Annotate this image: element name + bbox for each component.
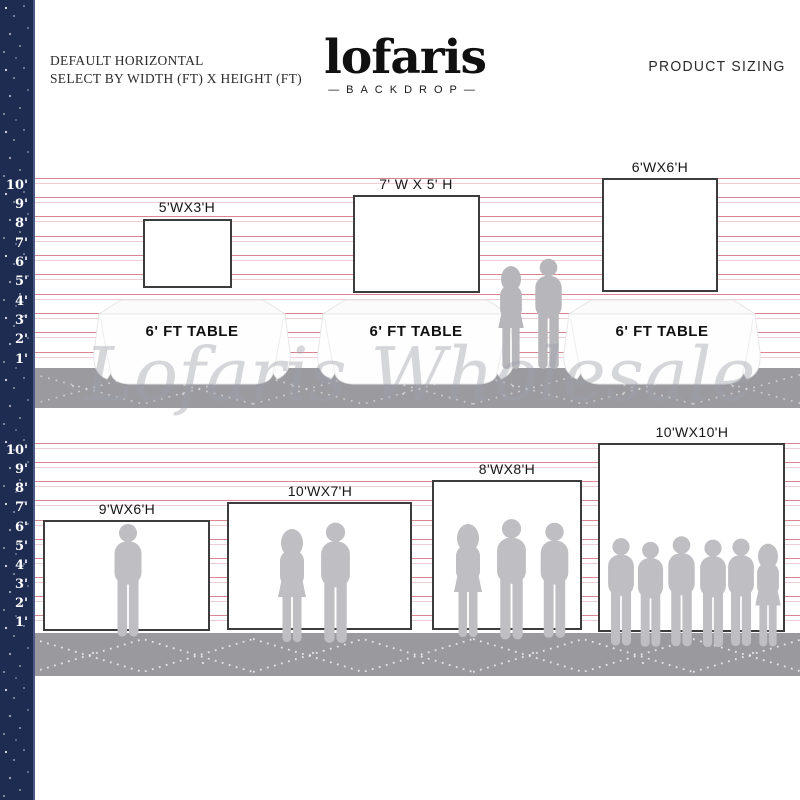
- reference-couple-silhouette: [491, 257, 573, 371]
- backdrop-size-label: 8'WX8'H: [447, 461, 567, 477]
- tablecloth-graphic: [311, 297, 521, 387]
- man-silhouette: [535, 259, 561, 369]
- woman-silhouette: [755, 544, 780, 647]
- scale-people-2: [270, 520, 366, 646]
- man-silhouette: [638, 542, 663, 647]
- scale-people-1: [104, 522, 152, 639]
- backdrop-size-label: 6'WX6'H: [600, 159, 720, 175]
- man-silhouette: [497, 519, 526, 639]
- woman-silhouette: [498, 266, 523, 369]
- product-sizing-poster: DEFAULT HORIZONTAL SELECT BY WIDTH (FT) …: [0, 0, 800, 800]
- foot-line: [33, 294, 800, 295]
- ruler-strip: [0, 0, 35, 800]
- backdrop-size-label: 10'WX7'H: [255, 483, 385, 499]
- ruler-strip-dots-pattern: [0, 0, 33, 800]
- backdrop-6x6: [602, 178, 718, 292]
- scale-people-3: [446, 513, 576, 646]
- table-2: 6' FT TABLE: [311, 297, 521, 387]
- man-silhouette: [541, 523, 569, 638]
- foot-lines-layer: [0, 0, 800, 800]
- backdrop-size-label: 9'WX6'H: [67, 501, 187, 517]
- backdrop-size-label: 7' W X 5' H: [346, 176, 486, 192]
- backdrop-size-label: 5'WX3'H: [127, 199, 247, 215]
- backdrop-size-label: 10'WX10'H: [627, 424, 757, 440]
- man-silhouette: [700, 540, 726, 647]
- man-silhouette: [115, 524, 142, 637]
- woman-silhouette: [454, 524, 482, 637]
- tablecloth-graphic: [557, 297, 767, 387]
- table-label: 6' FT TABLE: [87, 323, 297, 340]
- backdrop-5x3: [143, 219, 232, 288]
- woman-silhouette: [278, 529, 306, 642]
- man-silhouette: [608, 538, 634, 645]
- table-label: 6' FT TABLE: [557, 323, 767, 340]
- scale-people-6: [600, 531, 786, 651]
- table-1: 6' FT TABLE: [87, 297, 297, 387]
- tablecloth-graphic: [87, 297, 297, 387]
- table-label: 6' FT TABLE: [311, 323, 521, 340]
- backdrop-7x5: [353, 195, 480, 293]
- man-silhouette: [668, 536, 694, 646]
- man-silhouette: [728, 539, 754, 646]
- table-3: 6' FT TABLE: [557, 297, 767, 387]
- man-silhouette: [321, 523, 350, 643]
